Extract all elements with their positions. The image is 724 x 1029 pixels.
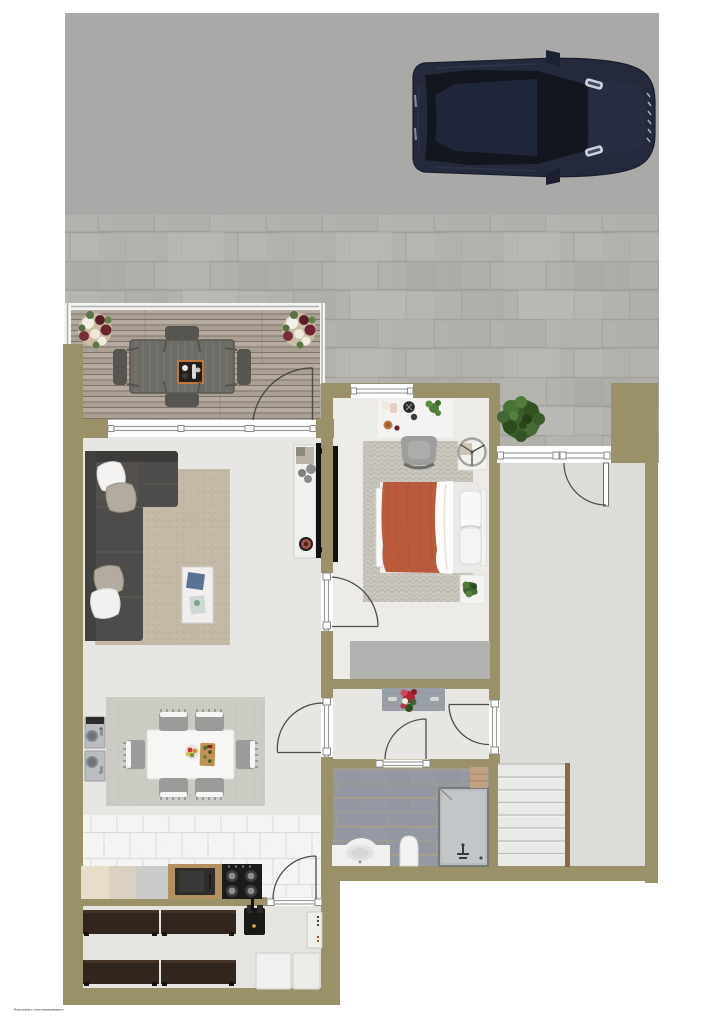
- svg-text:Reproduktion, nicht massstabsg: Reproduktion, nicht massstabsgetreu: [14, 1008, 64, 1012]
